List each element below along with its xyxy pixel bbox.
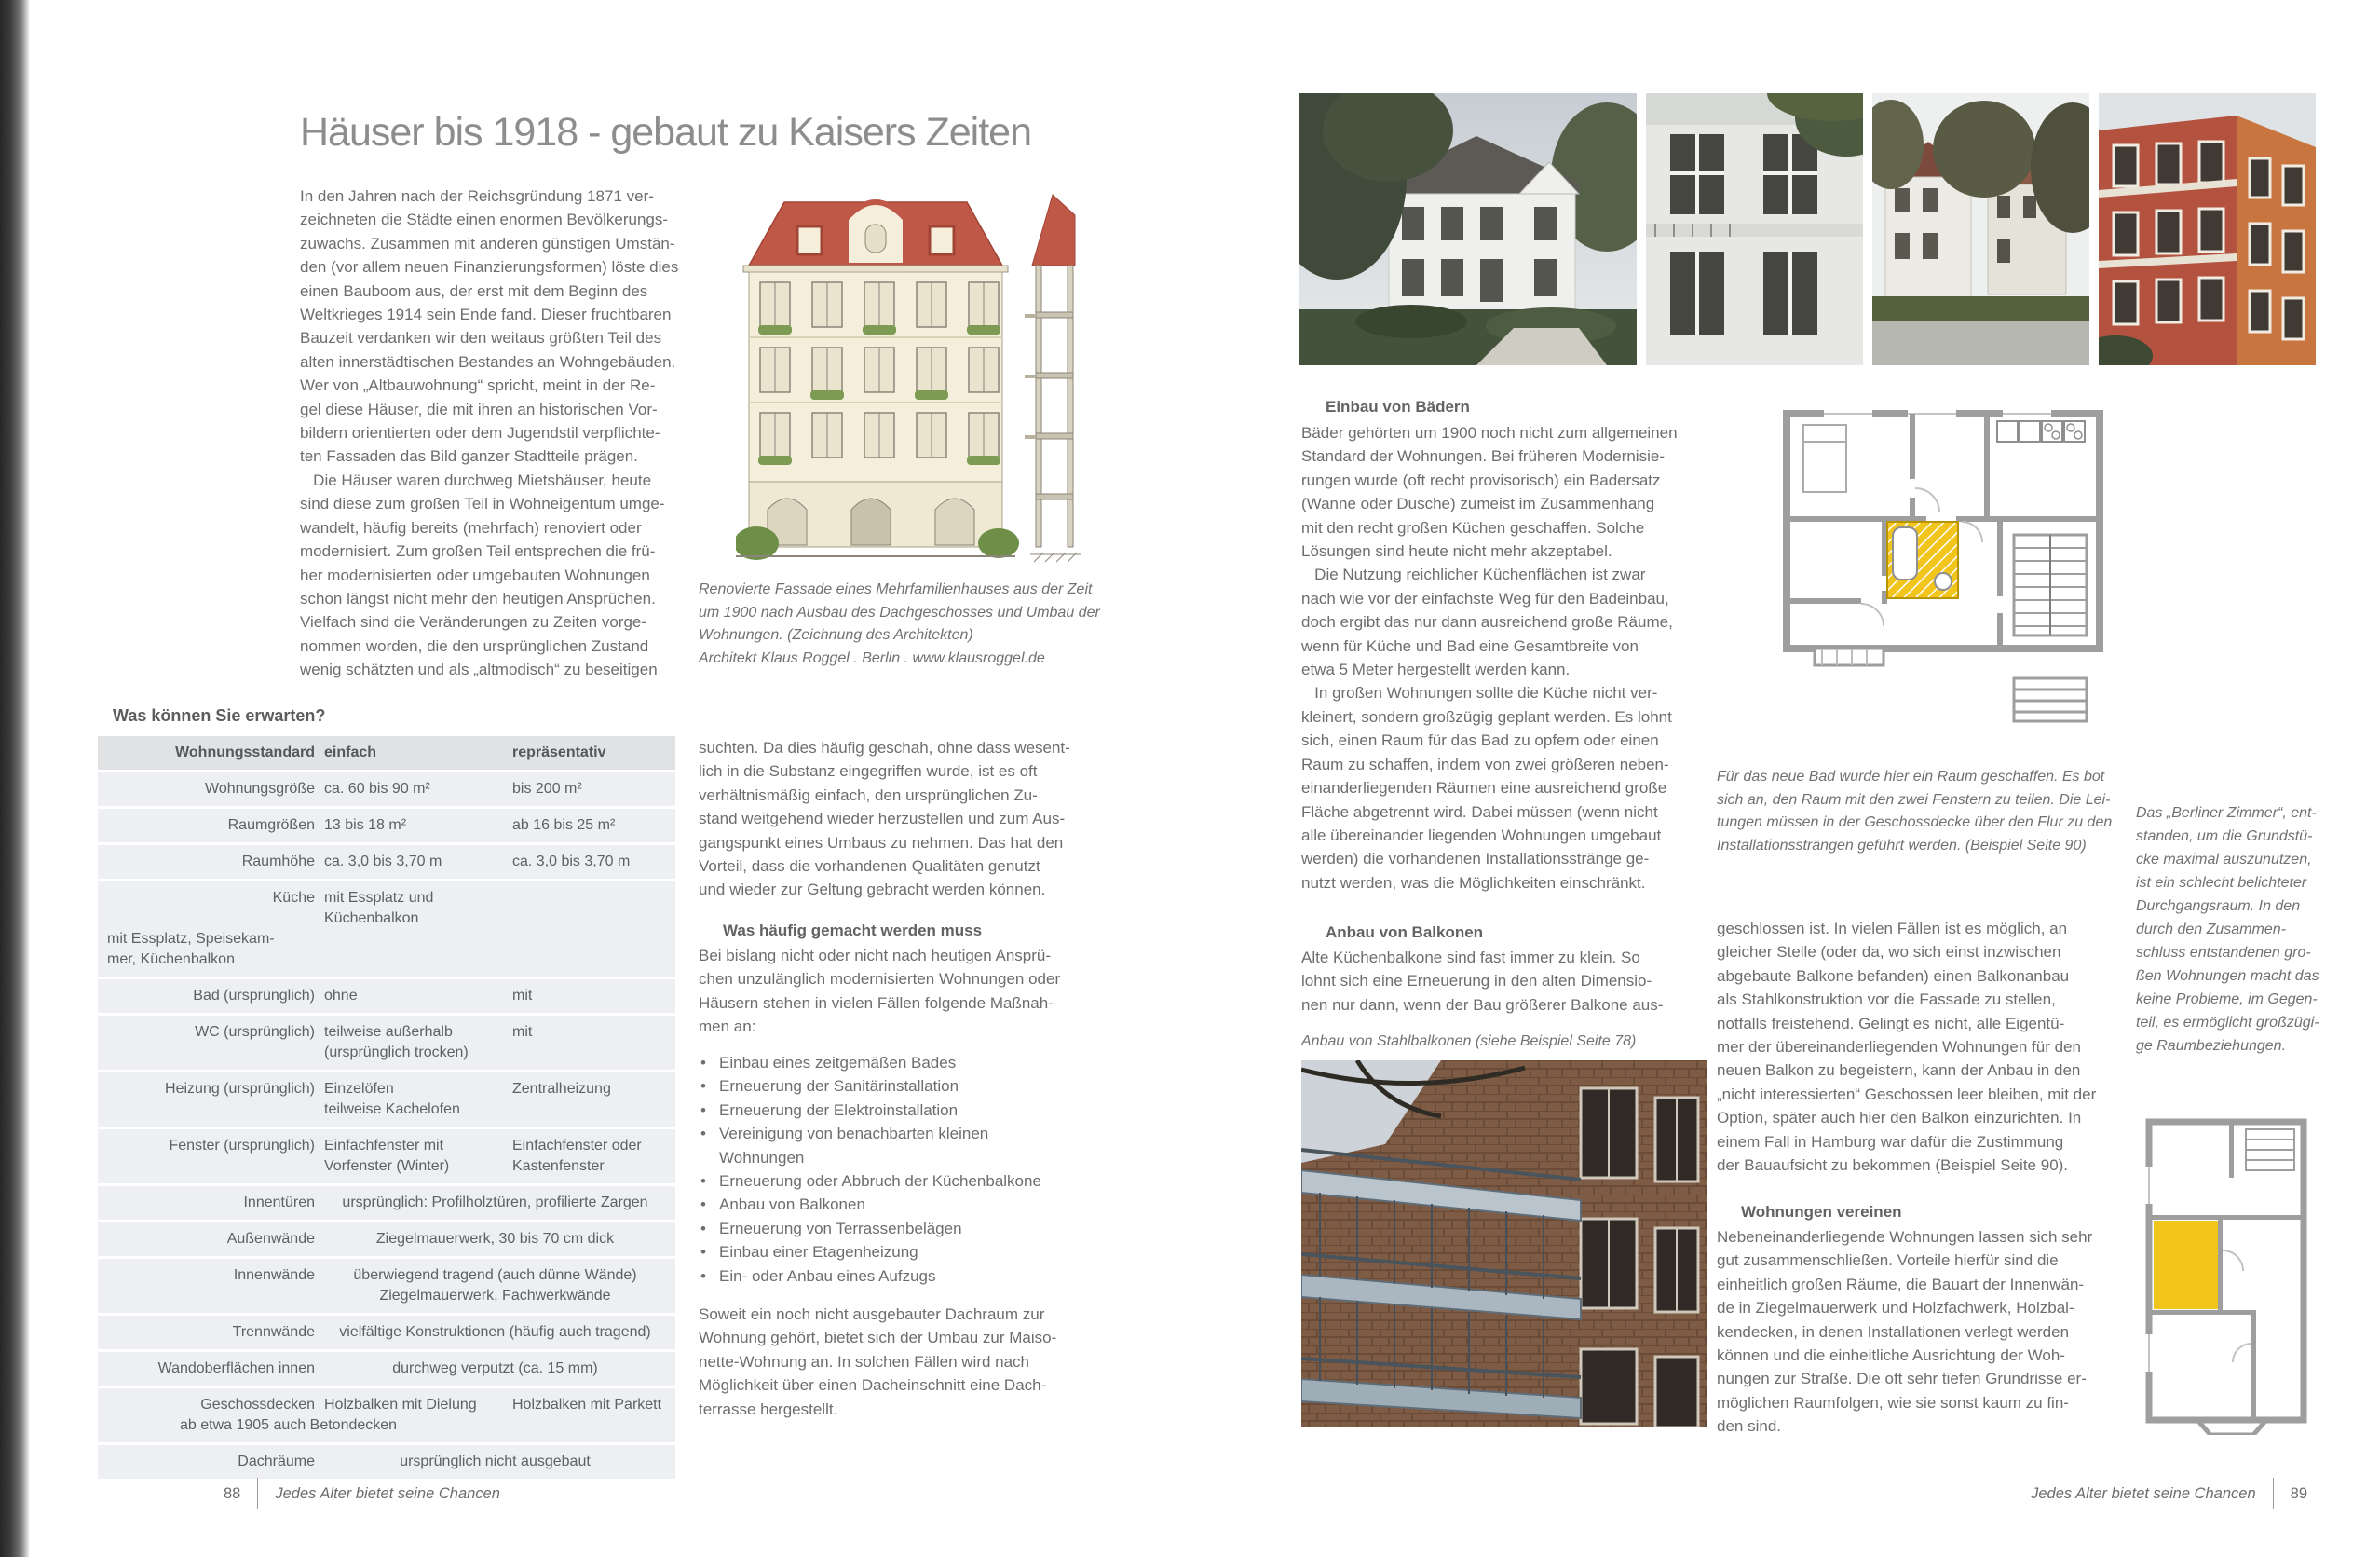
- photo-steel-balcony-image: [1301, 1060, 1707, 1427]
- table-header-standard: Wohnungsstandard: [98, 743, 315, 763]
- table-row: WC (ursprünglich) teilweise außerhalb (u…: [98, 1016, 675, 1070]
- table-row: Geschossdecken Holzbalken mit Dielung Ho…: [98, 1388, 675, 1442]
- footer-chapter-title-left: Jedes Alter bietet seine Chancen: [275, 1485, 500, 1503]
- balkone-paragraph: Alte Küchenbalkone sind fast immer zu kl…: [1301, 946, 1720, 1017]
- left-col2-paragraph-3: Soweit ein noch nicht ausgebauter Dachra…: [699, 1303, 1118, 1421]
- measures-list: Einbau eines zeitgemäßen Bades Erneuerun…: [699, 1051, 1118, 1288]
- list-item: Einbau eines zeitgemäßen Bades: [699, 1051, 1118, 1074]
- list-item: Vereinigung von benachbarten kleinen Woh…: [699, 1122, 1118, 1169]
- photo-villa: [1299, 93, 1637, 365]
- heading-einbau-von-baedern: Einbau von Bädern: [1301, 395, 1745, 418]
- table-row: Raumgrößen 13 bis 18 m² ab 16 bis 25 m²: [98, 809, 675, 842]
- table-row: Wandoberflächen innen durchweg verputzt …: [98, 1352, 675, 1386]
- expectations-table-title: Was können Sie erwarten?: [113, 706, 325, 726]
- list-item: Erneuerung von Terrassenbelägen: [699, 1217, 1118, 1240]
- table-row: Außenwände Ziegelmauerwerk, 30 bis 70 cm…: [98, 1222, 675, 1256]
- heading-wohnungen-vereinen: Wohnungen vereinen: [1717, 1200, 2160, 1223]
- photo-steel-balcony: [1301, 1060, 1707, 1427]
- heading-anbau-von-balkonen: Anbau von Balkonen: [1301, 921, 1745, 944]
- floorplan-new-bathroom: [1770, 399, 2116, 736]
- footer-divider: [2273, 1478, 2274, 1509]
- footer-right: Jedes Alter bietet seine Chancen 89: [2031, 1478, 2307, 1509]
- table-header-row: Wohnungsstandard einfach repräsentativ: [98, 736, 675, 770]
- footer-left: 88 Jedes Alter bietet seine Chancen: [224, 1478, 500, 1509]
- right-col2-paragraph-1: geschlossen ist. In vielen Fällen ist es…: [1717, 917, 2136, 1177]
- table-row: Trennwände vielfältige Konstruktionen (h…: [98, 1316, 675, 1349]
- baeder-paragraph: Bäder gehörten um 1900 noch nicht zum al…: [1301, 421, 1720, 895]
- footer-chapter-title-right: Jedes Alter bietet seine Chancen: [2031, 1485, 2256, 1503]
- right-col2-paragraph-2: Nebeneinanderliegende Wohnungen lassen s…: [1717, 1225, 2136, 1439]
- page-number-right: 89: [2291, 1485, 2307, 1503]
- table-row: Raumhöhe ca. 3,0 bis 3,70 m ca. 3,0 bis …: [98, 845, 675, 879]
- table-row: Heizung (ursprünglich) Einzelöfen teilwe…: [98, 1072, 675, 1127]
- table-row: Innentüren ursprünglich: Profilholztüren…: [98, 1186, 675, 1220]
- table-row: Dachräume ursprünglich nicht ausgebaut: [98, 1445, 675, 1479]
- intro-paragraph: In den Jahren nach der Reichsgründung 18…: [300, 184, 719, 682]
- left-col2-paragraph-1: suchten. Da dies häufig geschah, ohne da…: [699, 736, 1118, 902]
- balcony-photo-caption: Anbau von Stahlbalkonen (siehe Beispiel …: [1301, 1031, 1720, 1054]
- footer-divider: [257, 1478, 258, 1509]
- list-item: Ein- oder Anbau eines Aufzugs: [699, 1264, 1118, 1288]
- margin-note-berliner-zimmer: Das „Berliner Zimmer“, ent- standen, um …: [2136, 801, 2332, 1058]
- facade-drawing: [736, 172, 1085, 573]
- page-title: Häuser bis 1918 - gebaut zu Kaisers Zeit…: [300, 110, 1138, 156]
- table-row: Küche mit Essplatz und Küchenbalkon mit …: [98, 881, 675, 977]
- floorplan-berliner-zimmer: [2136, 1111, 2318, 1435]
- table-header-einfach: einfach: [315, 743, 503, 763]
- subheading-was-haeufig: Was häufig gemacht werden muss: [699, 919, 1142, 942]
- photo-villa-image: [1299, 93, 1637, 365]
- table-row: Innenwände überwiegend tragend (auch dün…: [98, 1259, 675, 1313]
- expectations-table: Wohnungsstandard einfach repräsentativ W…: [98, 736, 675, 1482]
- photo-white-facade-image: [1646, 93, 1863, 365]
- book-spread: Häuser bis 1918 - gebaut zu Kaisers Zeit…: [0, 0, 2380, 1557]
- photo-corner-building-image: [2099, 93, 2316, 365]
- facade-figure-caption: Renovierte Fassade eines Mehrfamilienhau…: [699, 579, 1099, 670]
- table-row: Fenster (ursprünglich) Einfachfenster mi…: [98, 1129, 675, 1183]
- list-item: Einbau einer Etagenheizung: [699, 1240, 1118, 1263]
- floorplan-new-bathroom-image: [1770, 399, 2116, 736]
- facade-drawing-image: [736, 172, 1085, 573]
- floorplan-berliner-zimmer-image: [2136, 1111, 2318, 1435]
- page-number-left: 88: [224, 1485, 240, 1503]
- photo-white-facade: [1646, 93, 1863, 365]
- photo-street-houses-image: [1872, 93, 2089, 365]
- list-item: Anbau von Balkonen: [699, 1193, 1118, 1216]
- table-header-repraesentativ: repräsentativ: [503, 743, 675, 763]
- table-row: Bad (ursprünglich) ohne mit: [98, 979, 675, 1013]
- floorplan-caption: Für das neue Bad wurde hier ein Raum ges…: [1717, 766, 2136, 857]
- list-item: Erneuerung oder Abbruch der Küchenbalkon…: [699, 1169, 1118, 1193]
- photo-street-houses: [1872, 93, 2089, 365]
- photo-corner-building: [2099, 93, 2316, 365]
- list-item: Erneuerung der Elektroinstallation: [699, 1099, 1118, 1122]
- list-item: Erneuerung der Sanitärinstallation: [699, 1074, 1118, 1098]
- table-row: Wohnungsgröße ca. 60 bis 90 m² bis 200 m…: [98, 772, 675, 806]
- left-col2-paragraph-2: Bei bislang nicht oder nicht nach heutig…: [699, 944, 1118, 1039]
- book-edge-shadow: [0, 0, 30, 1557]
